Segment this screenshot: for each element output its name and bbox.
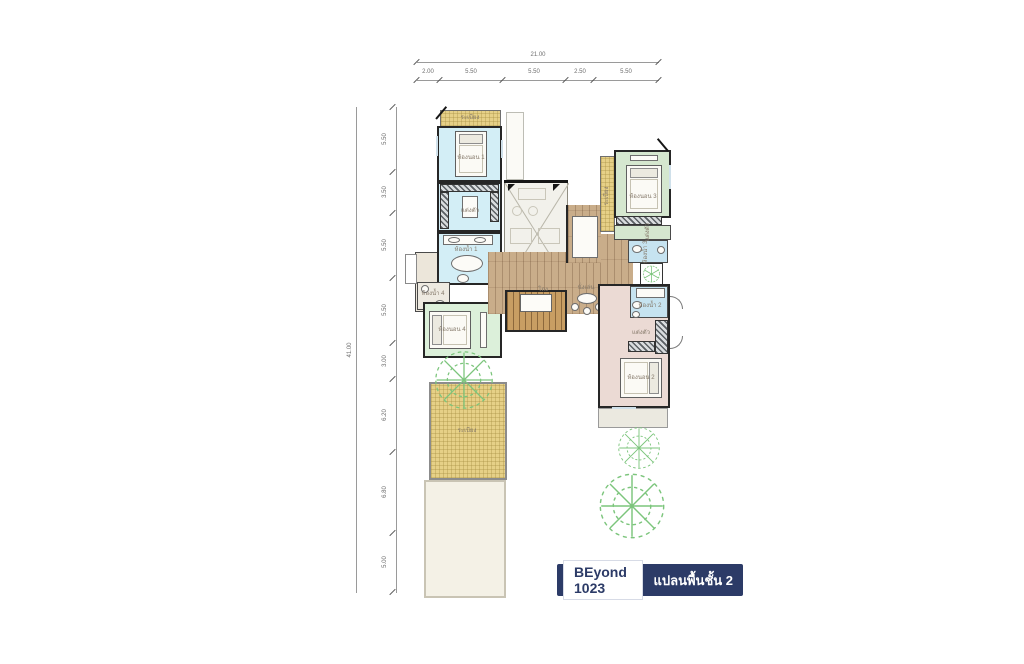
bed (455, 131, 487, 177)
sink (657, 246, 665, 254)
door-swing (670, 296, 683, 309)
dim-tick (389, 530, 395, 536)
wall (566, 205, 568, 263)
round-table (577, 293, 597, 304)
floorplan-canvas: 21.00 2.00 5.50 5.50 2.50 5.50 41.00 5.5… (0, 0, 1024, 664)
ghost-furniture (528, 206, 538, 216)
wardrobe (440, 184, 499, 192)
bathtub (451, 255, 483, 272)
planter (640, 263, 663, 285)
dressing-table (462, 196, 478, 218)
plan-caption: แปลนพื้นชั้น 2 (654, 570, 734, 591)
left-dim-seg: 3.50 (382, 186, 388, 198)
chair (583, 307, 591, 315)
dim-tick (389, 169, 395, 175)
balcony-top-label: ระเบียง (461, 115, 480, 121)
terrace-label: ระเบียง (458, 428, 477, 434)
tree-icon (596, 470, 668, 542)
dressing1-label: แต่งตัว (461, 208, 479, 214)
left-dim-seg: 5.50 (382, 133, 388, 145)
top-dim-seg-line (417, 80, 659, 81)
left-dim-seg: 5.50 (382, 304, 388, 316)
bath1-label: ห้องน้ำ 1 (455, 247, 478, 253)
title-badge: BEyond 1023 แปลนพื้นชั้น 2 (557, 564, 743, 596)
bedroom1-label: ห้องนอน 1 (457, 155, 484, 161)
left-dim-seg: 6.80 (382, 486, 388, 498)
window (436, 136, 438, 156)
dressing3-label: แต่งตัว (645, 223, 651, 241)
wardrobe (616, 216, 662, 225)
dim-tick (389, 104, 395, 110)
hall-label: โถง (538, 287, 548, 293)
sink (632, 311, 640, 318)
toilet (457, 274, 469, 283)
lower-roof (424, 480, 506, 598)
bedroom3-label: ห้องนอน 3 (629, 194, 656, 200)
left-dim-seg: 5.50 (382, 239, 388, 251)
console (630, 155, 658, 161)
dim-tick (389, 340, 395, 346)
bedroom4-label: ห้องนอน 4 (438, 327, 465, 333)
door-wedge (553, 184, 560, 191)
bathtub (636, 288, 665, 298)
top-dim-total-line (417, 62, 659, 63)
dim-tick (389, 449, 395, 455)
ghost-furniture (510, 228, 532, 244)
window (612, 407, 636, 409)
wardrobe (628, 341, 655, 352)
top-dim-seg: 2.00 (422, 69, 434, 75)
bath3-label: ห้องน้ำ 3 (643, 241, 649, 264)
window (501, 140, 503, 158)
dressing2-label: แต่งตัว (632, 330, 650, 336)
left-dim-seg-line (396, 107, 397, 593)
tree-icon (616, 425, 662, 471)
top-dim-seg: 2.50 (574, 69, 586, 75)
bath4-label: ห้องน้ำ 4 (422, 291, 445, 297)
sink (448, 237, 460, 243)
dim-tick (389, 589, 395, 595)
ghost-furniture (512, 206, 522, 216)
top-dim-seg: 5.50 (620, 69, 632, 75)
door-swing (670, 336, 683, 349)
wardrobe (490, 192, 499, 222)
bath2-label: ห้องน้ำ 2 (639, 303, 662, 309)
dim-tick (655, 77, 661, 83)
balcony3-label: ระเบียง (604, 187, 610, 206)
model-name: BEyond 1023 (563, 560, 643, 600)
dim-tick (389, 376, 395, 382)
chair (571, 303, 579, 311)
feature-wall (506, 112, 524, 180)
dim-tick (655, 59, 661, 65)
dressing3 (614, 225, 671, 240)
side-balcony (405, 254, 417, 284)
sofa (572, 216, 598, 258)
left-dim-total: 41.00 (347, 342, 353, 357)
dim-tick (389, 275, 395, 281)
left-dim-seg: 6.20 (382, 409, 388, 421)
window (669, 165, 671, 189)
left-dim-total-line (356, 107, 357, 593)
left-dim-seg: 3.00 (382, 355, 388, 367)
wardrobe (655, 320, 668, 354)
tv-console (480, 312, 487, 348)
sitting-label: นั่งเล่น (578, 285, 595, 291)
left-dim-seg: 5.00 (382, 556, 388, 568)
ghost-furniture (518, 188, 546, 200)
wardrobe (440, 192, 449, 229)
door-wedge (508, 184, 515, 191)
stair-landing (520, 294, 552, 312)
ghost-furniture (538, 228, 560, 244)
top-dim-total: 21.00 (530, 52, 545, 58)
bedroom2-label: ห้องนอน 2 (627, 375, 654, 381)
toilet (632, 245, 642, 253)
dim-tick (389, 210, 395, 216)
bed (626, 165, 662, 213)
top-dim-seg: 5.50 (465, 69, 477, 75)
plant-icon (641, 264, 662, 284)
top-dim-seg: 5.50 (528, 69, 540, 75)
tree-icon (428, 348, 500, 412)
wall (504, 180, 568, 183)
sink (474, 237, 486, 243)
